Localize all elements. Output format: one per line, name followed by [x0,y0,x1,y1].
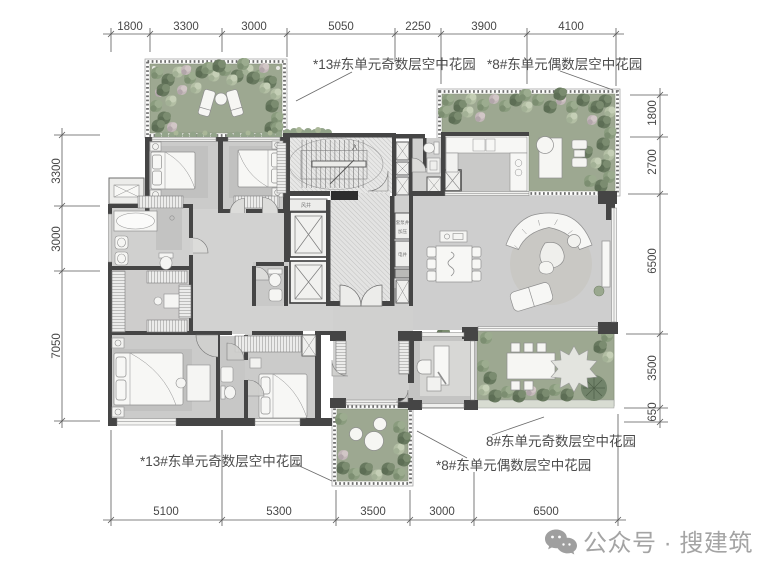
svg-text:6500: 6500 [533,506,559,518]
svg-text:风井: 风井 [301,202,311,209]
svg-text:3500: 3500 [647,355,659,381]
svg-text:加压: 加压 [398,228,407,235]
svg-text:公众号 · 搜建筑: 公众号 · 搜建筑 [583,530,753,557]
svg-text:3300: 3300 [51,158,63,184]
svg-text:4100: 4100 [558,21,584,33]
svg-text:2700: 2700 [647,149,659,175]
svg-text:*8#东单元偶数层空中花园: *8#东单元偶数层空中花园 [436,458,591,473]
svg-text:电井: 电井 [398,251,407,258]
svg-text:6500: 6500 [647,248,659,274]
svg-text:3500: 3500 [360,506,386,518]
svg-text:*13#东单元奇数层空中花园: *13#东单元奇数层空中花园 [140,453,303,469]
svg-text:2250: 2250 [405,21,431,33]
svg-text:8#东单元奇数层空中花园: 8#东单元奇数层空中花园 [486,433,636,449]
svg-text:5100: 5100 [153,506,179,518]
svg-text:3000: 3000 [429,506,455,518]
svg-text:7050: 7050 [51,333,63,359]
svg-text:3300: 3300 [173,21,199,33]
svg-text:1800: 1800 [647,100,659,126]
svg-text:650: 650 [647,402,659,421]
svg-text:3900: 3900 [471,21,497,33]
svg-text:3000: 3000 [51,226,63,252]
svg-text:1800: 1800 [117,21,143,33]
svg-text:5300: 5300 [266,506,292,518]
svg-text:*8#东单元偶数层空中花园: *8#东单元偶数层空中花园 [487,57,642,72]
svg-text:套泵井: 套泵井 [396,219,410,226]
svg-text:5050: 5050 [328,21,354,33]
svg-text:3000: 3000 [241,21,267,33]
svg-text:*13#东单元奇数层空中花园: *13#东单元奇数层空中花园 [313,56,476,72]
